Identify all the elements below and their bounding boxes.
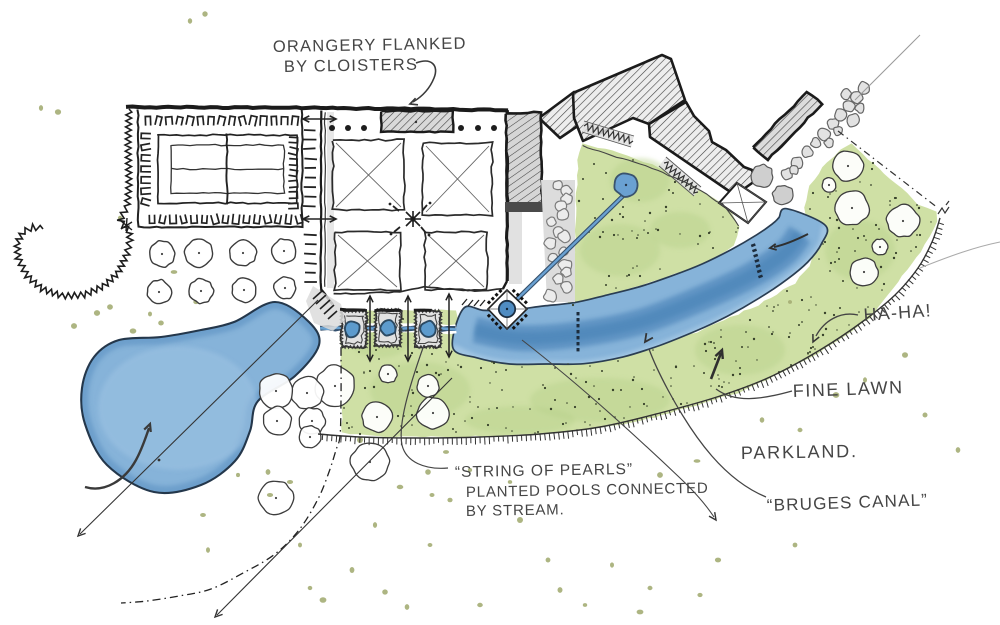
svg-text:“STRING OF PEARLS”: “STRING OF PEARLS”	[455, 461, 633, 481]
svg-text:PARKLAND.: PARKLAND.	[741, 441, 858, 463]
svg-text:BY STREAM.: BY STREAM.	[466, 501, 565, 520]
svg-text:ORANGERY FLANKED: ORANGERY FLANKED	[273, 35, 467, 56]
svg-text:FINE LAWN: FINE LAWN	[792, 377, 903, 401]
svg-text:BY CLOISTERS: BY CLOISTERS	[284, 56, 419, 76]
